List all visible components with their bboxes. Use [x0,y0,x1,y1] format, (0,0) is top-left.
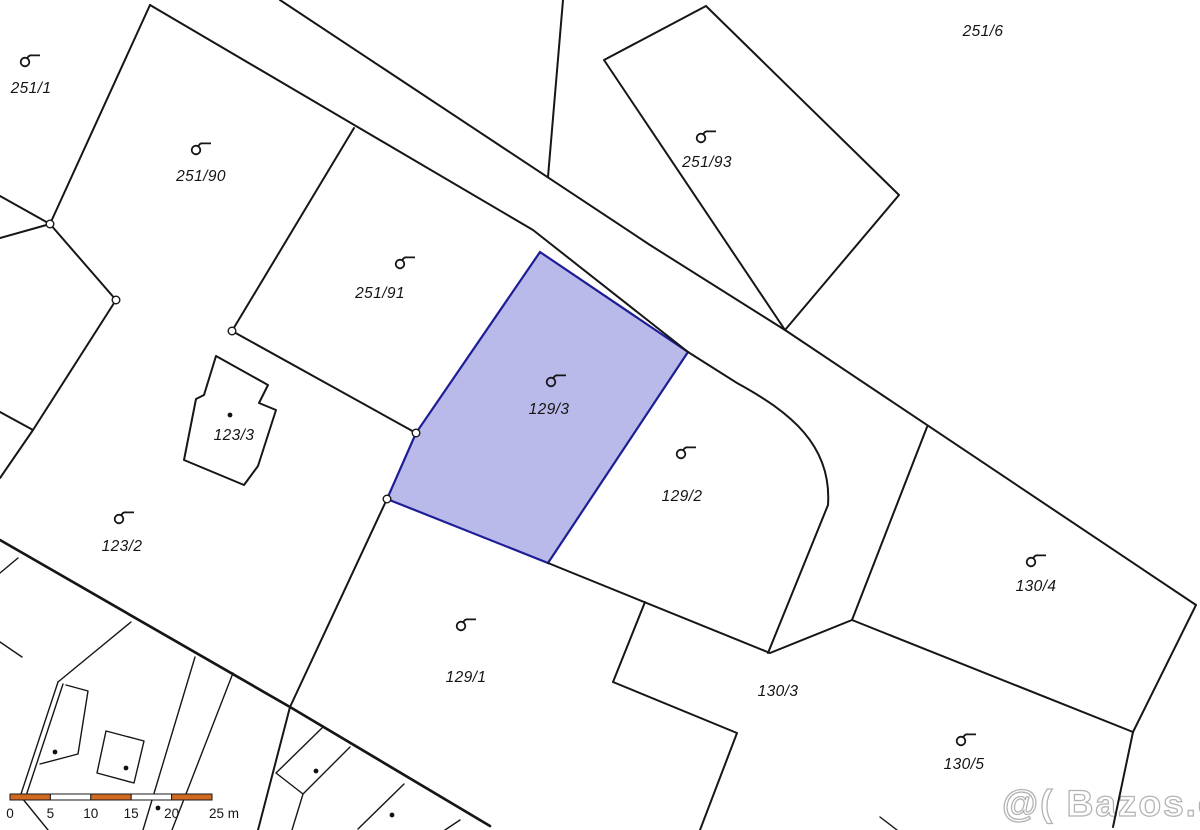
boundary-line [58,622,131,682]
boundary-point-marker [383,495,391,503]
boundary-line [50,224,116,300]
small-parcel-outline [40,685,88,764]
small-parcel-outline [276,728,350,830]
scale-bar-tick-label: 20 [164,806,179,821]
parcel-label-251-1: 251/1 [10,80,52,97]
boundary-line [852,427,927,620]
boundary-line [548,563,852,653]
parcel-label-129-2: 129/2 [662,488,703,505]
landuse-icon [396,257,415,268]
parcel-label-130-3: 130/3 [758,683,799,700]
boundary-line [548,0,563,177]
landuse-icon [697,131,716,142]
watermark-text: @( Bazos.cz [1002,783,1200,824]
cadastral-map-canvas: @( Bazos.cz [0,0,1200,830]
cadastral-map-screenshot: @( Bazos.cz [0,0,1200,830]
parcel-label-251-6: 251/6 [962,23,1004,40]
scale-bar-segment [131,794,171,800]
boundary-line [232,331,416,433]
parcel-label-251-93: 251/93 [681,154,732,171]
path-double-line [20,682,63,830]
scale-bar-tick-label: 25 m [209,806,239,821]
boundary-line [258,499,387,830]
building-dot [228,413,233,418]
landuse-icon [457,619,476,630]
boundary-line [852,620,1133,732]
scale-bar-segment [172,794,212,800]
boundary-point-marker [412,429,420,437]
landuse-icon [1027,555,1046,566]
boundary-line [0,642,22,657]
watermark: @( Bazos.cz [1002,783,1200,824]
parcel-label-123-3: 123/3 [214,427,255,444]
boundary-line [0,540,490,826]
scale-bar-segment [50,794,90,800]
boundary-line [0,224,50,238]
boundary-line [143,657,195,830]
landuse-icon [21,55,40,66]
parcel-label-130-4: 130/4 [1016,578,1057,595]
boundary-point-marker [228,327,236,335]
building-dots [53,413,395,818]
boundary-line [0,558,18,573]
boundary-point-markers [46,220,420,503]
boundary-line [613,602,737,830]
scale-bar-tick-label: 15 [124,806,139,821]
parcel-label-251-90: 251/90 [175,168,226,185]
parcel-129-2-rounded-corner [688,352,828,653]
road-edge-east [785,330,1196,605]
boundary-line [880,817,897,830]
parcel-label-130-5: 130/5 [944,756,985,773]
small-parcel-outline [97,731,144,783]
scale-bar-tick-label: 10 [83,806,98,821]
parcel-251-93-outline [604,6,899,330]
scale-bar-segment [10,794,50,800]
building-dot [53,750,58,755]
boundary-point-marker [46,220,54,228]
landuse-icon [192,143,211,154]
boundary-line [0,300,116,478]
building-123-3-outline [184,356,276,485]
small-parcel-outline [358,784,460,830]
boundary-line [0,412,33,430]
building-dot [124,766,129,771]
scale-bar-tick-label: 5 [47,806,55,821]
scale-bar-segment [91,794,131,800]
building-dot [390,813,395,818]
boundary-line [0,196,50,224]
parcel-label-129-1: 129/1 [446,669,487,686]
parcel-label-251-91: 251/91 [354,285,405,302]
boundary-point-marker [112,296,120,304]
scale-bar: 0510152025 m [6,794,239,821]
parcel-label-129-3: 129/3 [529,401,570,418]
scale-bar-tick-label: 0 [6,806,14,821]
landuse-icon [957,734,976,745]
boundary-line [232,128,354,331]
parcel-label-123-2: 123/2 [102,538,143,555]
building-dot [156,806,161,811]
building-dot [314,769,319,774]
landuse-icon [115,512,134,523]
landuse-icon [677,447,696,458]
boundary-line [50,5,150,224]
